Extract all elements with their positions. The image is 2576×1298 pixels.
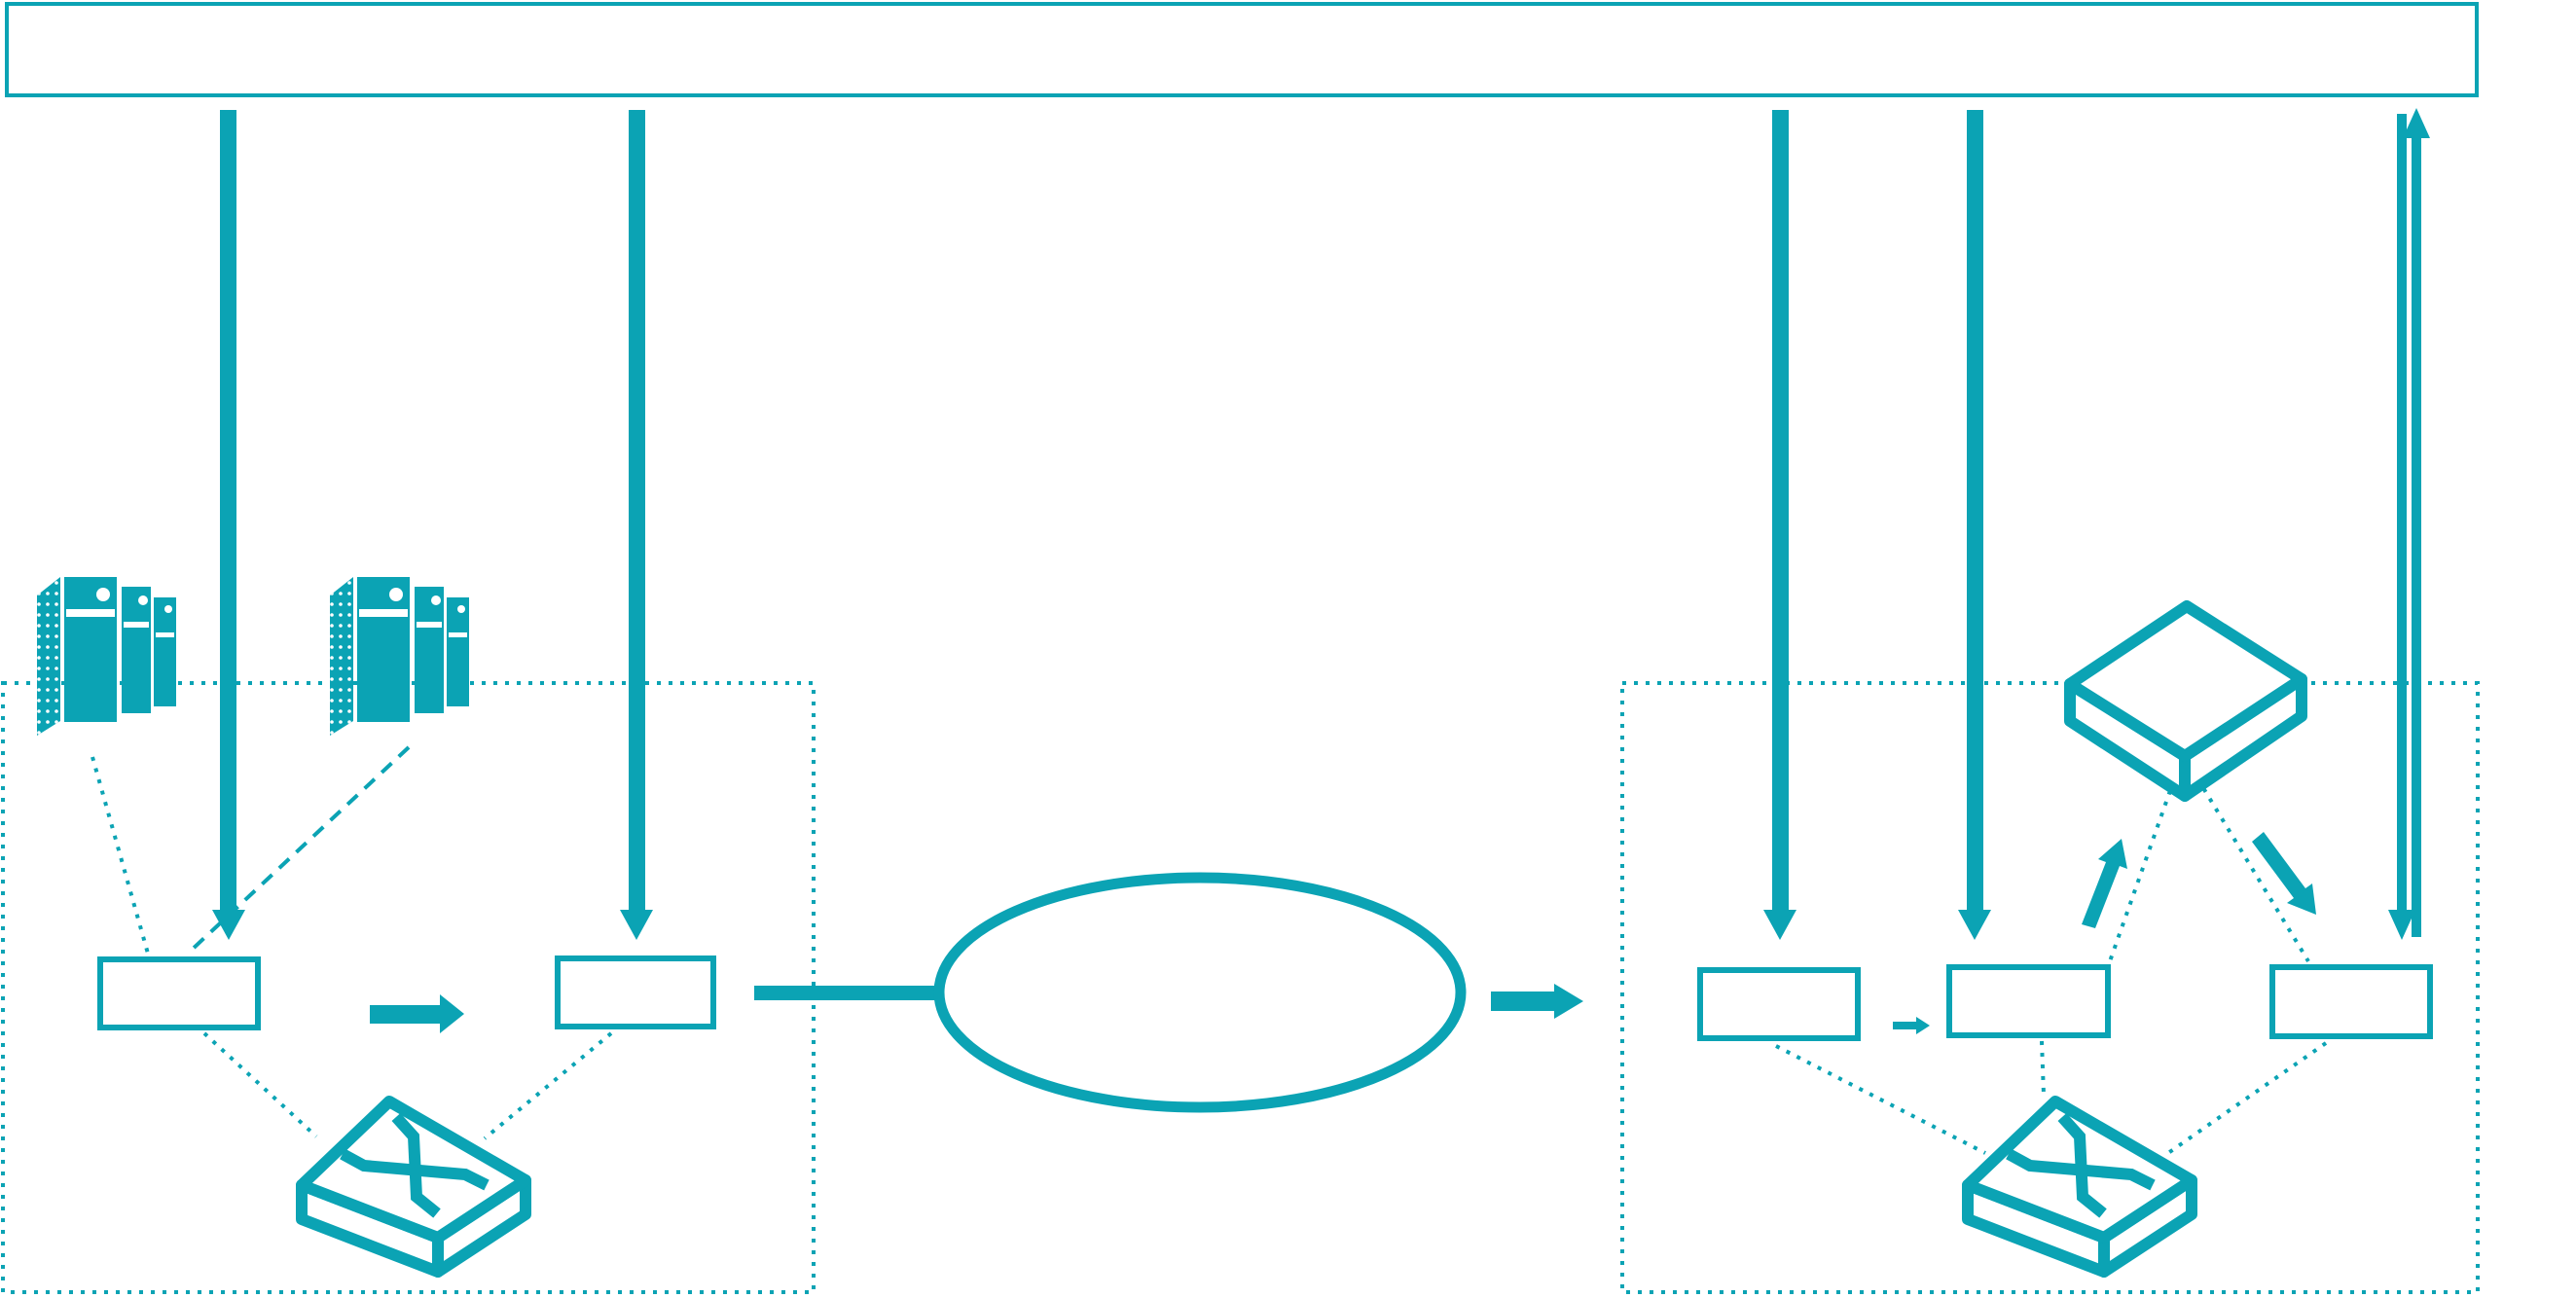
block-arrow-left: [370, 994, 464, 1033]
switch-icon: [1968, 1101, 2192, 1272]
down-arrow-4: [1958, 110, 1991, 940]
link-box2-switch-left: [485, 1033, 611, 1138]
node-box-left-2: [558, 958, 713, 1027]
link-box1-switch-left: [204, 1033, 316, 1136]
updown-arrow-pair: [2388, 108, 2430, 940]
top-banner: [7, 4, 2477, 95]
down-arrow-1: [212, 110, 245, 940]
node-box-right-3: [2272, 967, 2430, 1036]
bridge-icon: [2070, 606, 2302, 796]
server-stack-icon: [37, 577, 176, 736]
small-arrow-right-cluster: [1893, 1017, 1930, 1034]
link-boxC-switch-right: [2168, 1043, 2326, 1153]
link-servers1-box: [92, 757, 148, 954]
switch-icon: [302, 1101, 526, 1272]
node-box-left-1: [100, 959, 258, 1028]
link-boxB-switch-right: [2042, 1041, 2044, 1095]
down-arrow-2: [620, 110, 653, 940]
bridge-down-arrow: [2252, 832, 2316, 915]
diagram-canvas: [0, 0, 2576, 1298]
bridge-up-arrow: [2082, 839, 2127, 928]
server-stack-icon: [330, 577, 469, 736]
node-box-right-1: [1700, 970, 1858, 1038]
link-bridge-boxC: [2192, 769, 2308, 961]
link-boxA-switch-right: [1776, 1046, 1985, 1153]
diagram-svg: [0, 0, 2576, 1298]
node-box-right-2: [1949, 967, 2108, 1035]
block-arrow-cloud-out: [1491, 984, 1583, 1019]
down-arrow-3: [1763, 110, 1796, 940]
connector-line: [754, 986, 941, 1000]
cloud-ellipse: [939, 878, 1461, 1107]
